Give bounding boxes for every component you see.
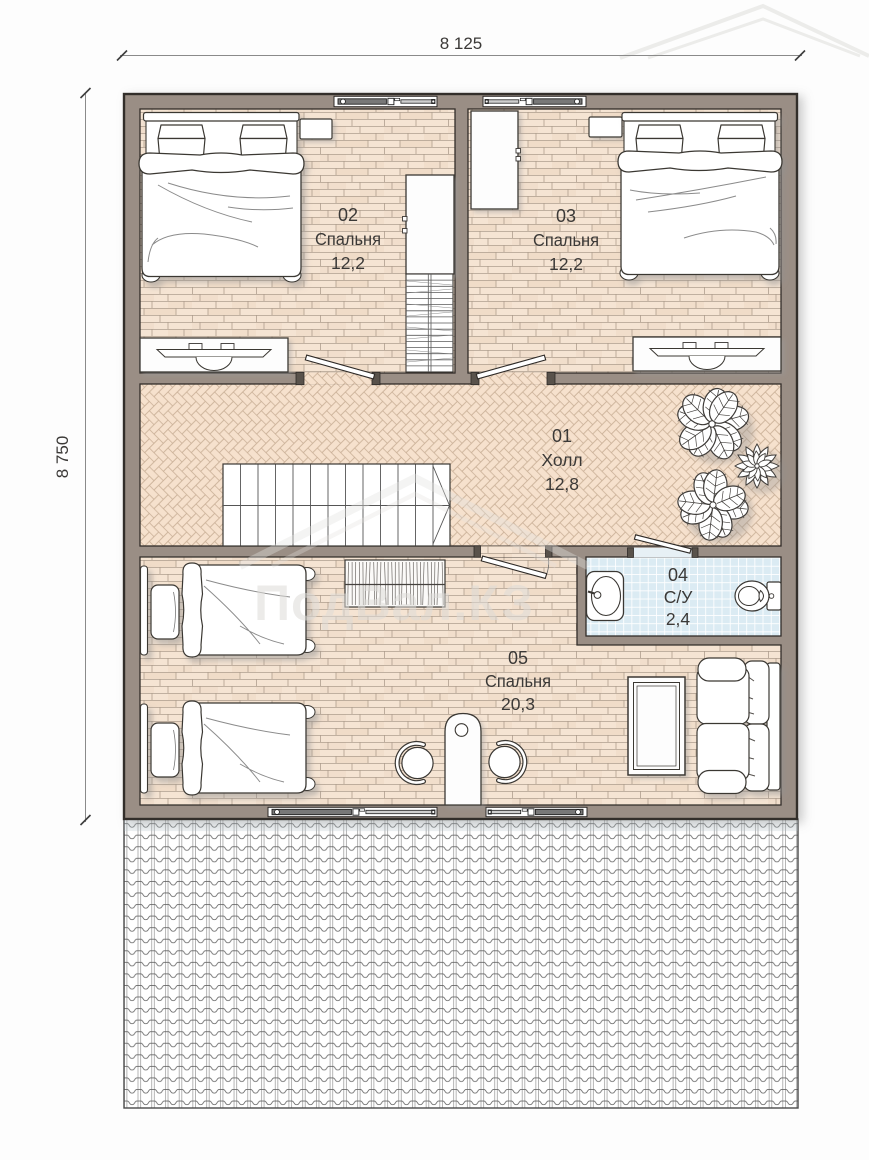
svg-text:04: 04 xyxy=(668,565,688,585)
svg-text:12,2: 12,2 xyxy=(331,253,365,273)
svg-text:03: 03 xyxy=(556,206,576,226)
svg-text:Холл: Холл xyxy=(541,450,582,470)
svg-text:12,8: 12,8 xyxy=(545,474,579,494)
svg-text:8 125: 8 125 xyxy=(440,34,483,53)
svg-text:ПодВал.КЗ: ПодВал.КЗ xyxy=(254,575,534,631)
svg-text:2,4: 2,4 xyxy=(666,609,691,629)
svg-text:Спальня: Спальня xyxy=(485,671,551,691)
svg-text:12,2: 12,2 xyxy=(549,254,583,274)
svg-text:8 750: 8 750 xyxy=(53,436,72,479)
svg-text:20,3: 20,3 xyxy=(501,694,535,714)
svg-text:01: 01 xyxy=(552,426,572,446)
svg-text:05: 05 xyxy=(508,648,528,668)
svg-text:Спальня: Спальня xyxy=(533,230,599,250)
svg-text:С/У: С/У xyxy=(664,587,694,607)
svg-text:02: 02 xyxy=(338,205,358,225)
svg-text:Спальня: Спальня xyxy=(315,229,381,249)
